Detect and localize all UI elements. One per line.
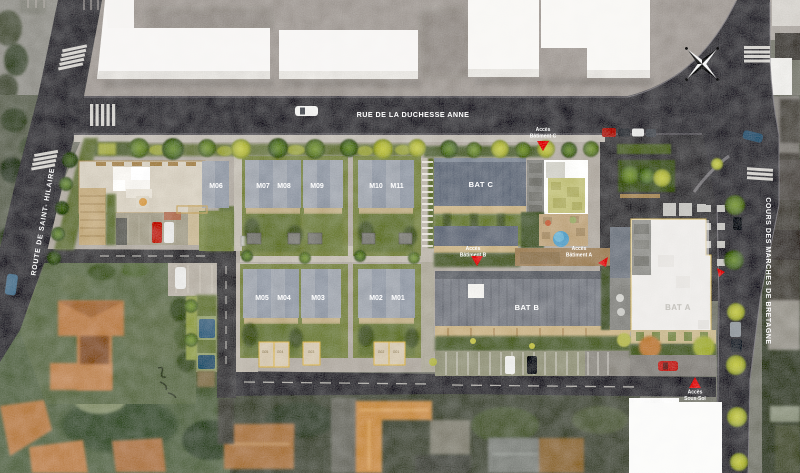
- svg-text:M05: M05: [255, 295, 269, 302]
- svg-text:BAT B: BAT B: [515, 303, 540, 312]
- svg-text:M06: M06: [209, 183, 223, 190]
- svg-text:M01: M01: [391, 295, 405, 302]
- svg-text:Bâtiment A: Bâtiment A: [566, 253, 593, 259]
- svg-text:M03: M03: [311, 295, 325, 302]
- svg-text:G03: G03: [308, 350, 315, 354]
- svg-text:Accès: Accès: [688, 390, 703, 396]
- svg-text:Accès: Accès: [466, 246, 481, 252]
- svg-text:BAT A: BAT A: [665, 303, 691, 312]
- svg-text:M08: M08: [277, 183, 291, 190]
- svg-text:Bâtiment C: Bâtiment C: [530, 134, 557, 140]
- svg-text:G01: G01: [393, 350, 400, 354]
- svg-text:M04: M04: [277, 295, 291, 302]
- svg-text:G05: G05: [262, 350, 269, 354]
- svg-text:M10: M10: [369, 183, 383, 190]
- svg-text:Accès: Accès: [536, 127, 551, 133]
- svg-text:BAT C: BAT C: [469, 180, 494, 189]
- svg-text:G02: G02: [378, 350, 385, 354]
- svg-text:COURS DES MARCHES DE BRETAGNE: COURS DES MARCHES DE BRETAGNE: [764, 197, 771, 344]
- svg-text:M07: M07: [256, 183, 270, 190]
- svg-text:M09: M09: [310, 183, 324, 190]
- svg-text:Sous-Sol: Sous-Sol: [684, 396, 706, 402]
- svg-text:M11: M11: [390, 183, 403, 190]
- svg-text:Accès: Accès: [572, 246, 587, 252]
- svg-text:M02: M02: [369, 295, 383, 302]
- svg-text:G04: G04: [277, 350, 284, 354]
- svg-text:RUE DE LA DUCHESSE ANNE: RUE DE LA DUCHESSE ANNE: [357, 110, 470, 119]
